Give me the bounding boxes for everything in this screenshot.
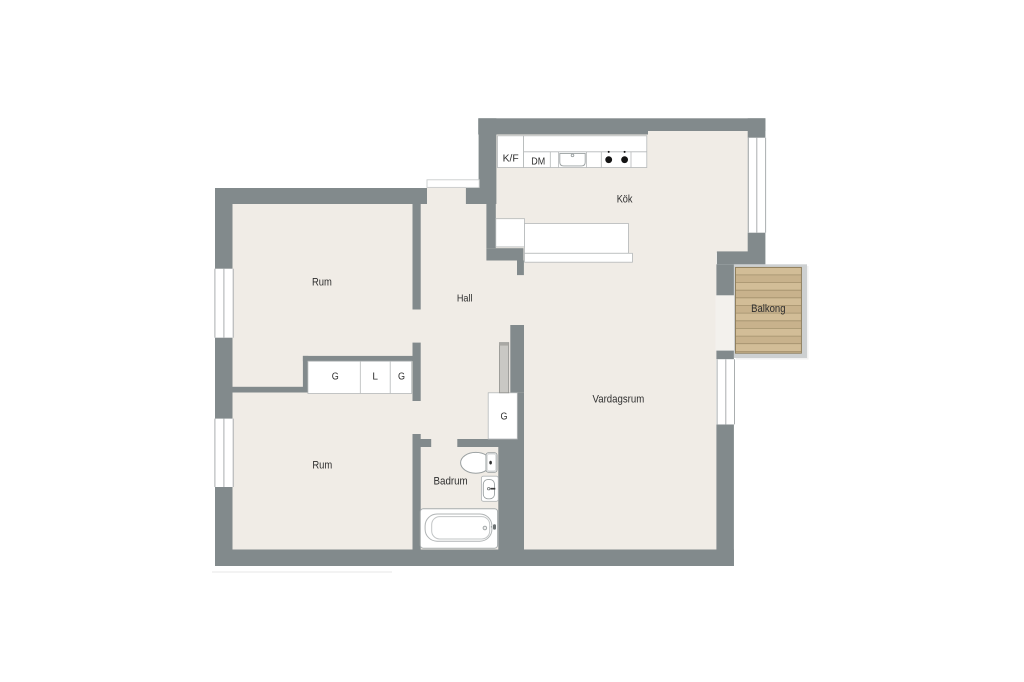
svg-text:Badrum: Badrum — [434, 475, 468, 487]
svg-text:G: G — [332, 372, 339, 383]
svg-text:K/F: K/F — [503, 153, 519, 165]
svg-text:DM: DM — [531, 156, 545, 167]
svg-text:Balkong: Balkong — [751, 303, 785, 315]
svg-text:G: G — [398, 372, 405, 383]
svg-text:Rum: Rum — [312, 276, 332, 288]
svg-text:G: G — [501, 412, 508, 423]
svg-text:Vardagsrum: Vardagsrum — [593, 394, 645, 406]
svg-text:Hall: Hall — [457, 293, 473, 304]
svg-text:Rum: Rum — [312, 460, 332, 472]
svg-text:L: L — [372, 372, 378, 383]
svg-text:Kök: Kök — [617, 194, 633, 206]
